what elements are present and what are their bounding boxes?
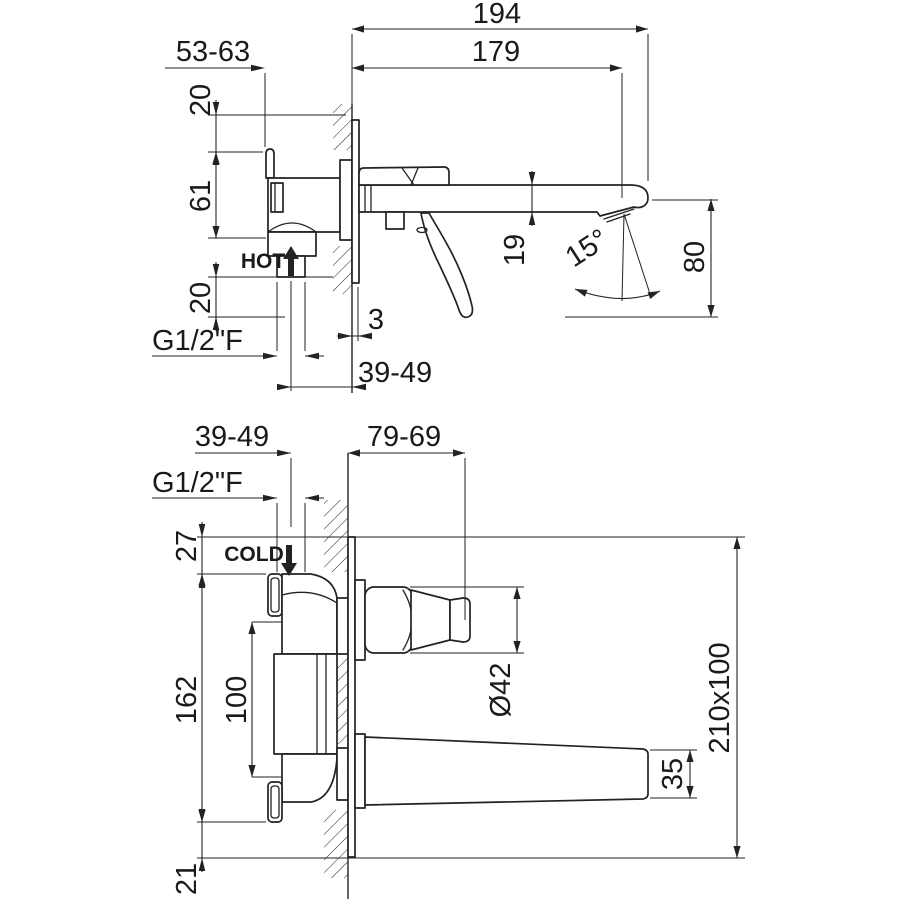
dim-39-49-front: 39-49 xyxy=(195,421,269,453)
dim-100: 100 xyxy=(221,676,253,724)
label-cold: COLD xyxy=(224,543,284,566)
wall-plate-side xyxy=(352,120,359,283)
dim-20-bottom: 20 xyxy=(185,282,217,314)
thread-label-side: G1/2"F xyxy=(152,325,243,357)
dim-80: 80 xyxy=(679,241,711,273)
wall-hatch-bottom xyxy=(324,810,348,878)
dim-20-top: 20 xyxy=(185,84,217,116)
front-view: 39-49 79-69 G1/2"F COLD 27 162 100 21 Ø4… xyxy=(152,421,745,899)
dim-27: 27 xyxy=(171,530,203,562)
body-column xyxy=(274,654,337,754)
bottom-mounting-tab xyxy=(268,782,282,822)
knob-cone xyxy=(411,590,450,650)
dim-210x100: 210x100 xyxy=(704,642,736,753)
wall-plate-front xyxy=(348,537,355,857)
inlet-boss xyxy=(271,183,283,212)
cartridge-flange xyxy=(340,160,352,240)
dim-53-63: 53-63 xyxy=(176,36,250,68)
dim-39-49-side: 39-49 xyxy=(358,357,432,389)
body-end-tab xyxy=(266,149,274,178)
spout-stem-wall xyxy=(337,748,348,800)
wall-hatch-lower xyxy=(333,246,352,294)
mixer-installation-drawing: 194 179 53-63 20 61 20 HOT G1/2"F 3 39-4… xyxy=(0,0,901,901)
dim-179: 179 xyxy=(472,36,520,68)
dim-3: 3 xyxy=(368,304,384,336)
dim-162: 162 xyxy=(171,676,203,724)
dim-angle-15: 15° xyxy=(560,223,614,274)
spout-front xyxy=(355,734,648,808)
top-mounting-tab xyxy=(268,574,282,616)
dim-dia42: Ø42 xyxy=(485,663,517,718)
dim-35: 35 xyxy=(657,758,689,790)
dim-79-69: 79-69 xyxy=(367,421,441,453)
concealed-body-front xyxy=(268,574,348,822)
handle-lever xyxy=(421,213,473,317)
upper-body-block xyxy=(282,574,337,654)
dim-21: 21 xyxy=(171,863,203,895)
knob-escutcheon-ring xyxy=(355,580,365,660)
dim-61: 61 xyxy=(185,180,217,212)
wall-hatch-upper xyxy=(333,104,352,150)
knob-end-cap xyxy=(450,598,470,642)
dim-194: 194 xyxy=(473,0,521,30)
wall-hatch-top xyxy=(324,500,348,572)
label-hot: HOT xyxy=(241,250,286,273)
technical-drawing-page: 194 179 53-63 20 61 20 HOT G1/2"F 3 39-4… xyxy=(0,0,901,901)
handle-stem-wall xyxy=(337,598,348,654)
spout-escutcheon-ring xyxy=(355,734,365,808)
thread-label-front: G1/2"F xyxy=(152,467,243,499)
handle-knob xyxy=(355,580,470,660)
cartridge-nut xyxy=(386,212,404,229)
handle-pivot-housing xyxy=(359,167,449,185)
dim-19: 19 xyxy=(499,234,531,266)
front-dimension-lines xyxy=(152,450,737,872)
knob-cylinder xyxy=(365,587,412,653)
lower-body-block xyxy=(282,754,337,802)
side-view: 194 179 53-63 20 61 20 HOT G1/2"F 3 39-4… xyxy=(152,0,718,393)
spout-body-front xyxy=(365,737,648,805)
